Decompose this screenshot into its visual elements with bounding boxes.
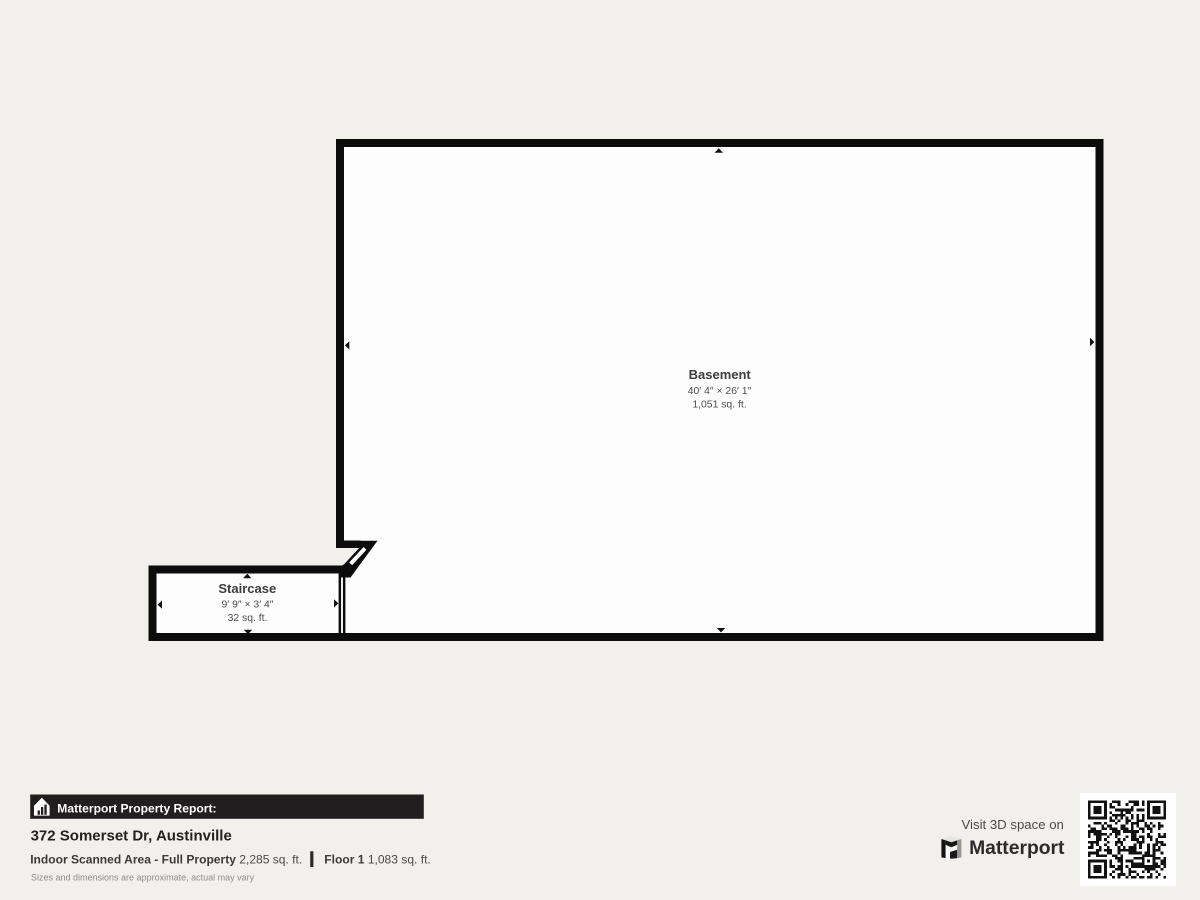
svg-text:Sizes and dimensions are appro: Sizes and dimensions are approximate, ac…: [31, 872, 255, 882]
svg-text:1,051 sq. ft.: 1,051 sq. ft.: [692, 400, 746, 411]
svg-text:Floor 1 1,083 sq. ft.: Floor 1 1,083 sq. ft.: [324, 852, 430, 866]
svg-text:40′ 4″ × 26′ 1″: 40′ 4″ × 26′ 1″: [688, 386, 752, 397]
svg-text:Indoor Scanned Area - Full Pro: Indoor Scanned Area - Full Property 2,28…: [30, 852, 302, 866]
svg-text:9′ 9″ × 3′ 4″: 9′ 9″ × 3′ 4″: [222, 599, 274, 610]
svg-text:Matterport Property Report:: Matterport Property Report:: [57, 801, 216, 815]
svg-text:Basement: Basement: [689, 367, 752, 382]
svg-text:372 Somerset Dr, Austinville: 372 Somerset Dr, Austinville: [31, 827, 232, 844]
svg-text:Visit 3D space on: Visit 3D space on: [962, 817, 1064, 832]
svg-text:Staircase: Staircase: [218, 581, 276, 596]
svg-text:32 sq. ft.: 32 sq. ft.: [228, 613, 268, 624]
svg-text:Matterport: Matterport: [969, 838, 1065, 859]
